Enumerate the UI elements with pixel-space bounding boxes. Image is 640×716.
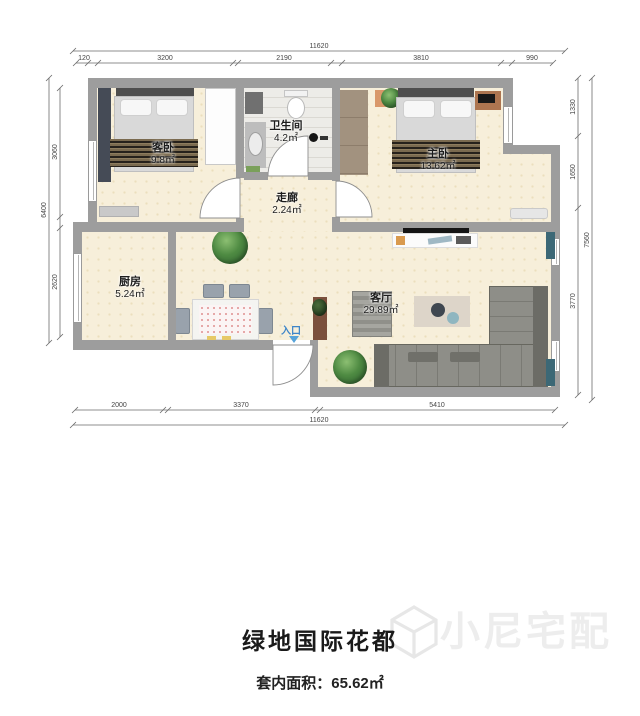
window (503, 106, 513, 144)
floor-drain (309, 133, 318, 142)
fixture (320, 136, 328, 140)
curtain (546, 359, 555, 386)
chair (203, 284, 224, 298)
room-name: 主卧 (420, 148, 455, 161)
room-name: 厨房 (115, 276, 144, 289)
room-area: 29.89㎡ (363, 305, 398, 317)
room-name: 卫生间 (270, 120, 303, 133)
room-area: 9.8㎡ (151, 155, 175, 167)
chair (258, 308, 273, 334)
plan-title: 绿地国际花都 (242, 628, 398, 654)
pillow (403, 100, 435, 118)
decor-item (456, 236, 471, 244)
room-area: 13.62㎡ (420, 161, 455, 173)
radiator (510, 208, 548, 219)
room-label-living-room: 客厅 29.89㎡ (363, 292, 398, 316)
room-area: 4.2㎡ (270, 133, 303, 145)
wall (308, 172, 332, 180)
dim-bottom-total: 11620 (310, 417, 329, 424)
area-caption-value: 65.62㎡ (331, 675, 384, 692)
dim-right-total: 7560 (584, 232, 591, 248)
wall (244, 172, 268, 180)
tv (403, 228, 469, 233)
chair (229, 284, 250, 298)
room-area: 2.24㎡ (272, 205, 301, 217)
wall (88, 78, 513, 88)
guest-door-opening (236, 178, 244, 218)
plant (312, 299, 327, 316)
window (73, 253, 82, 323)
sink (248, 132, 263, 156)
plant (333, 350, 367, 384)
room-label-master-bedroom: 主卧 13.62㎡ (420, 148, 455, 172)
tv (478, 94, 495, 103)
dim-top-seg: 990 (526, 55, 538, 62)
closet (205, 88, 236, 165)
toilet-tank (284, 90, 308, 97)
table-runner (199, 305, 252, 334)
curtain (546, 232, 555, 259)
dim-left-seg: 3060 (52, 144, 59, 160)
wardrobe (340, 90, 368, 175)
entry-arrow-icon (289, 336, 299, 343)
wall (310, 387, 560, 397)
area-caption: 套内面积：65.62㎡ (0, 672, 640, 693)
wall (332, 88, 340, 181)
title-block: 绿地国际花都 (0, 622, 640, 656)
dim-right-seg: 1330 (570, 99, 577, 115)
entry-label: 入口 (281, 322, 301, 337)
dim-bottom-seg: 2000 (111, 402, 127, 409)
window (88, 140, 97, 202)
room-name: 客卧 (151, 142, 175, 155)
room-name: 客厅 (363, 292, 398, 305)
wall (73, 340, 273, 350)
room-label-bathroom: 卫生间 4.2㎡ (270, 120, 303, 144)
room-label-kitchen: 厨房 5.24㎡ (115, 276, 144, 300)
dim-bottom-seg: 3370 (233, 402, 249, 409)
dim-right-seg: 1650 (570, 164, 577, 180)
toilet (287, 97, 305, 119)
coffee-table (431, 303, 445, 317)
sofa (374, 344, 548, 387)
pillow (120, 99, 152, 116)
shelf (99, 206, 139, 217)
dim-left-seg: 2620 (52, 274, 59, 290)
dim-top-seg: 3200 (157, 55, 173, 62)
dim-top-seg: 120 (78, 55, 90, 62)
dim-left-total: 6400 (41, 202, 48, 218)
wall (310, 340, 318, 390)
pillow (156, 99, 188, 116)
room-label-corridor: 走廊 2.24㎡ (272, 192, 301, 216)
wardrobe (98, 86, 111, 182)
wall (168, 232, 176, 340)
wall (236, 88, 244, 178)
dim-top-seg: 2190 (276, 55, 292, 62)
master-door-opening (332, 181, 340, 217)
wall (73, 222, 244, 232)
dim-top-seg: 3810 (413, 55, 429, 62)
sofa-cushion (408, 352, 438, 362)
decor-item (396, 236, 405, 245)
dim-top-total: 11620 (310, 43, 329, 50)
chair (175, 308, 190, 334)
room-area: 5.24㎡ (115, 289, 144, 301)
coffee-table (447, 312, 459, 324)
sofa-cushion (450, 352, 480, 362)
area-caption-label: 套内面积： (256, 675, 331, 692)
pillow (440, 100, 472, 118)
washing-machine (245, 92, 263, 114)
room-name: 走廊 (272, 192, 301, 205)
dim-bottom-seg: 5410 (429, 402, 445, 409)
floor-plan-page: 入口 客卧 9.8㎡ 卫生间 4.2㎡ 走廊 2.24㎡ 主卧 13.62㎡ 厨… (0, 0, 640, 716)
sofa-armrest (374, 344, 389, 387)
room-label-guest-bedroom: 客卧 9.8㎡ (151, 142, 175, 166)
door-arc-entry (273, 345, 313, 385)
dim-right-seg: 3770 (570, 293, 577, 309)
plant (212, 228, 248, 264)
